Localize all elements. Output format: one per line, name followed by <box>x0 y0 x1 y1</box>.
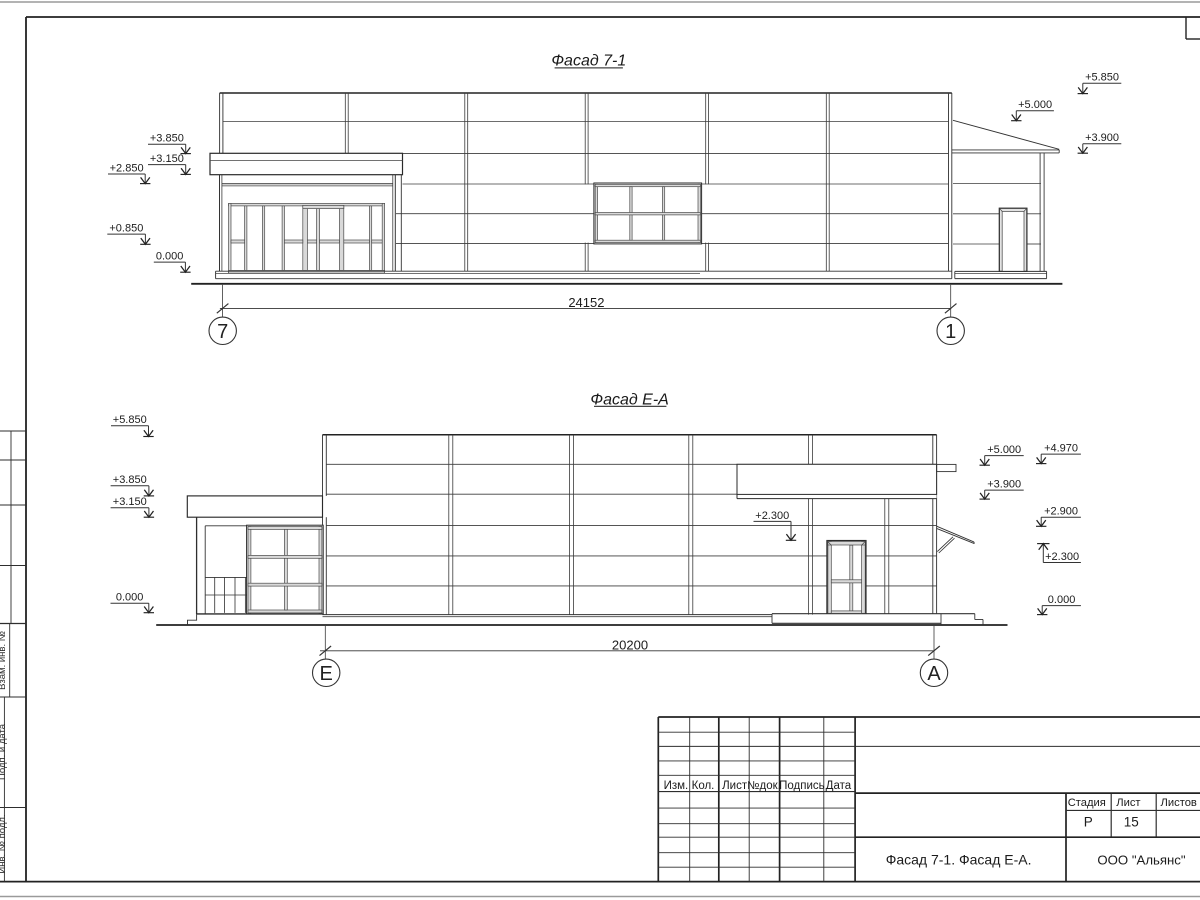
svg-text:+5.000: +5.000 <box>987 444 1021 456</box>
svg-text:+4.970: +4.970 <box>1044 443 1078 455</box>
svg-text:Р: Р <box>1084 814 1093 829</box>
svg-text:+5.850: +5.850 <box>1085 72 1119 84</box>
svg-text:0.000: 0.000 <box>156 251 184 263</box>
svg-text:ООО "Альянс": ООО "Альянс" <box>1097 852 1185 867</box>
svg-text:15: 15 <box>1124 814 1139 829</box>
svg-text:Кол.: Кол. <box>692 780 715 792</box>
svg-text:20200: 20200 <box>612 637 648 652</box>
svg-text:Дата: Дата <box>826 780 852 792</box>
svg-text:Лист: Лист <box>722 780 748 792</box>
svg-text:+2.850: +2.850 <box>110 162 144 174</box>
svg-text:+3.150: +3.150 <box>150 153 184 165</box>
svg-text:+3.900: +3.900 <box>987 479 1021 491</box>
svg-text:Фасад Е-А: Фасад Е-А <box>590 391 668 408</box>
svg-text:Подпись: Подпись <box>779 780 825 792</box>
svg-text:Листов: Листов <box>1161 797 1197 809</box>
svg-text:+3.900: +3.900 <box>1085 132 1119 144</box>
svg-text:Взам. инв. №: Взам. инв. № <box>0 631 8 690</box>
svg-text:7: 7 <box>217 321 228 343</box>
svg-text:+0.850: +0.850 <box>109 223 143 235</box>
svg-text:0.000: 0.000 <box>1048 594 1076 606</box>
svg-text:А: А <box>927 663 941 685</box>
svg-text:24152: 24152 <box>568 295 604 310</box>
svg-text:Инв. № подл.: Инв. № подл. <box>0 814 8 873</box>
svg-text:+2.900: +2.900 <box>1044 506 1078 518</box>
svg-text:0.000: 0.000 <box>116 592 144 604</box>
svg-text:+3.150: +3.150 <box>113 496 147 508</box>
svg-text:№док.: №док. <box>747 780 781 792</box>
svg-text:+2.300: +2.300 <box>755 510 789 522</box>
svg-text:Изм.: Изм. <box>664 780 689 792</box>
svg-text:1: 1 <box>945 321 956 343</box>
svg-text:Фасад 7-1. Фасад Е-А.: Фасад 7-1. Фасад Е-А. <box>886 851 1032 867</box>
svg-text:+3.850: +3.850 <box>150 133 184 145</box>
svg-text:Стадия: Стадия <box>1068 797 1106 809</box>
svg-text:Е: Е <box>320 663 333 685</box>
svg-text:+5.000: +5.000 <box>1018 99 1052 111</box>
svg-text:+5.850: +5.850 <box>113 414 147 426</box>
svg-text:+2.300: +2.300 <box>1045 551 1079 563</box>
svg-text:Лист: Лист <box>1116 797 1140 809</box>
svg-text:Подп. и дата: Подп. и дата <box>0 723 8 780</box>
svg-text:Фасад 7-1: Фасад 7-1 <box>551 52 626 69</box>
svg-text:+3.850: +3.850 <box>113 474 147 486</box>
